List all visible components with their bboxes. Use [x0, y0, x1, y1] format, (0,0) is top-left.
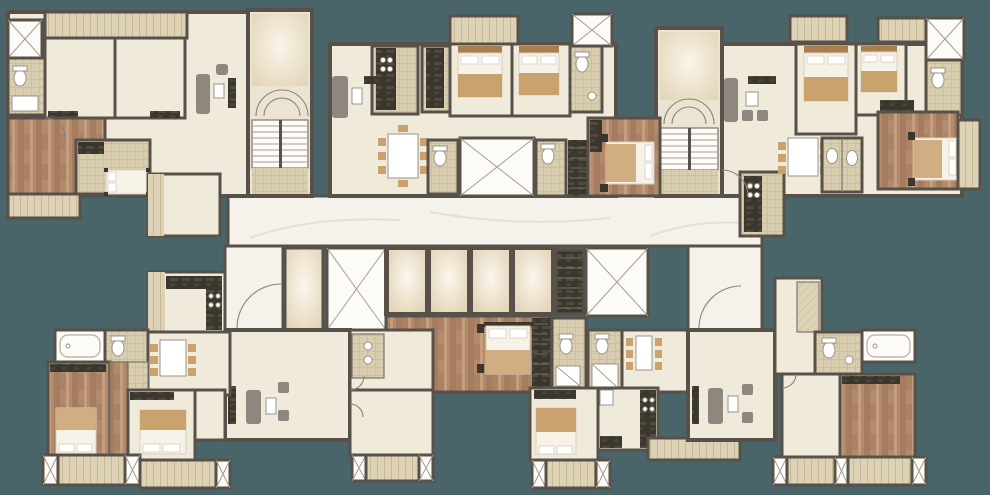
- double-bed: [458, 46, 502, 97]
- dresser: [50, 364, 106, 372]
- dining-table: [388, 134, 418, 178]
- bathtub-room: [55, 330, 105, 362]
- bedroom-floor: [350, 390, 433, 455]
- balcony: [532, 460, 610, 488]
- wardrobe-unit: [568, 140, 588, 196]
- stairwell-left: [248, 10, 312, 196]
- dresser: [130, 392, 174, 400]
- deck-niche: [797, 282, 819, 332]
- balcony: [43, 455, 140, 485]
- refrigerator: [206, 316, 222, 330]
- bathroom: [552, 318, 586, 392]
- master-bedroom: [588, 118, 660, 196]
- kitchen-counter: [166, 276, 222, 289]
- bedroom: [450, 44, 512, 116]
- double-bed: [140, 410, 186, 454]
- tv-console: [228, 78, 236, 108]
- planter-box-x: [8, 20, 42, 58]
- hall: [350, 330, 433, 390]
- bathroom: [926, 60, 962, 115]
- kitchen-counter: [78, 142, 104, 154]
- stairwell-right: [656, 28, 722, 196]
- master-bedroom: [840, 374, 915, 457]
- service-shaft-x-right: [586, 248, 648, 316]
- bedroom-floor: [115, 38, 185, 118]
- bathroom: [536, 140, 566, 196]
- double-bed: [600, 134, 654, 192]
- utility-room: [422, 46, 450, 112]
- double-bed: [804, 46, 848, 101]
- double-bed: [519, 46, 559, 95]
- bathroom: [8, 58, 45, 115]
- wardrobe-unit: [532, 318, 550, 390]
- balcony-deck: [450, 16, 518, 44]
- double-bed: [536, 408, 576, 454]
- wardrobe-nook: [195, 390, 225, 440]
- bathtub-room: [862, 330, 915, 362]
- bathroom: [815, 332, 862, 374]
- bedroom: [512, 44, 570, 116]
- wardrobe-unit: [880, 100, 914, 112]
- bathroom: [570, 46, 602, 112]
- bathrooms: [822, 138, 862, 192]
- utility-room: [148, 174, 220, 236]
- wood-passage: [110, 362, 128, 460]
- balcony-deck: [45, 12, 187, 38]
- balcony-deck: [8, 194, 80, 218]
- elevator-shaft: [473, 250, 509, 312]
- master-bedroom: [878, 112, 958, 189]
- powder-room: [428, 140, 458, 194]
- stair-shaft: [252, 14, 308, 86]
- elevator-shaft: [389, 250, 425, 312]
- tv-console: [364, 76, 390, 84]
- balcony-deck: [878, 18, 926, 42]
- tv-console: [692, 386, 699, 424]
- planter-box-x: [926, 18, 964, 60]
- double-bed: [861, 46, 897, 92]
- stair-treads: [660, 128, 718, 170]
- planter-box-x: [572, 14, 612, 46]
- dresser: [534, 390, 576, 399]
- double-bed: [56, 408, 96, 454]
- balcony: [140, 460, 230, 488]
- bedroom: [796, 44, 856, 134]
- living-floor: [688, 330, 775, 440]
- elevator-shaft: [285, 248, 323, 330]
- bedroom: [128, 390, 195, 460]
- private-lift-x: [460, 138, 534, 196]
- floor-plan-canvas: [0, 0, 990, 495]
- appliance-stack: [426, 48, 444, 108]
- dining-set: [148, 332, 230, 395]
- lift-lobby-left: [225, 246, 283, 332]
- stair-treads: [252, 120, 308, 168]
- elevator-shaft: [515, 250, 551, 312]
- master-bedroom: [48, 362, 110, 457]
- bedroom-floor: [782, 374, 840, 457]
- bedroom-floor: [45, 38, 115, 118]
- elevator-shaft: [431, 250, 467, 312]
- balcony-deck: [790, 16, 847, 42]
- balcony-deck: [958, 120, 980, 189]
- dresser: [842, 376, 900, 384]
- refrigerator: [600, 390, 613, 405]
- kitchen: [148, 272, 225, 332]
- tv-console: [748, 76, 776, 84]
- service-shaft-x-left: [327, 248, 386, 330]
- double-bed: [908, 132, 958, 186]
- stair-landing: [660, 170, 718, 194]
- stair-landing: [252, 168, 308, 194]
- dining-room: [622, 330, 688, 392]
- bathroom: [588, 330, 622, 392]
- floor-plan-image: [0, 0, 990, 495]
- utility-deck: [148, 272, 165, 332]
- kitchen-counter: [600, 436, 622, 448]
- balcony: [773, 457, 926, 485]
- service-duct: [556, 250, 584, 314]
- master-wood-floor: [840, 374, 915, 457]
- dining-table: [636, 336, 652, 370]
- dining-table: [788, 138, 818, 176]
- wardrobe-unit: [150, 111, 180, 118]
- kitchen: [740, 172, 784, 236]
- kitchen-counter: [206, 289, 222, 316]
- single-bed: [104, 168, 150, 196]
- balcony: [352, 455, 433, 481]
- dining-table: [160, 340, 186, 376]
- stair-shaft: [660, 32, 718, 100]
- bedroom: [530, 388, 598, 460]
